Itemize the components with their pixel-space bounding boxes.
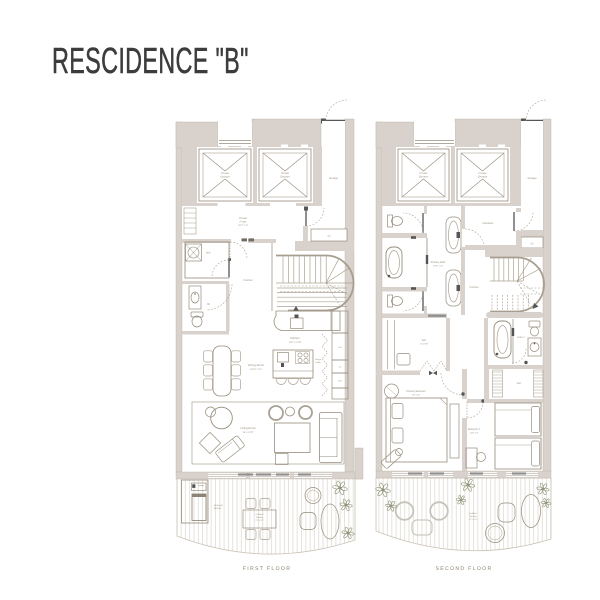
svg-text:11′6″ x 9′: 11′6″ x 9′	[470, 432, 479, 435]
svg-text:Outdoor: Outdoor	[256, 513, 264, 516]
svg-text:WIC: WIC	[517, 382, 522, 385]
svg-text:Wardrobe: Wardrobe	[483, 222, 494, 225]
svg-text:Elevator: Elevator	[220, 176, 230, 179]
svg-text:Larder: Larder	[315, 361, 321, 364]
svg-text:17′ x 14′: 17′ x 14′	[469, 518, 478, 521]
svg-text:Storage: Storage	[329, 177, 339, 180]
svg-text:AC: AC	[327, 235, 331, 238]
svg-text:Kitchen: Kitchen	[290, 336, 300, 340]
svg-text:13′10″ x 11′: 13′10″ x 11′	[250, 368, 263, 371]
svg-text:Primary Bath: Primary Bath	[431, 261, 446, 264]
svg-text:10′7″ x 9′: 10′7″ x 9′	[238, 224, 248, 227]
svg-text:19′ x 16′: 19′ x 16′	[412, 394, 421, 397]
svg-text:Living Room: Living Room	[240, 426, 256, 430]
svg-text:DW: DW	[338, 346, 341, 349]
svg-text:Primary Bedroom: Primary Bedroom	[406, 390, 425, 393]
svg-text:16′6″ x 10′: 16′6″ x 10′	[433, 265, 444, 268]
svg-text:Outdoor: Outdoor	[469, 512, 477, 515]
svg-text:Storage: Storage	[527, 177, 537, 180]
svg-text:PR: PR	[207, 303, 211, 306]
svg-text:Dining Room: Dining Room	[248, 363, 265, 367]
svg-text:W/D: W/D	[206, 252, 211, 255]
svg-text:11′ x 9′6″: 11′ x 9′6″	[420, 343, 429, 346]
svg-text:Range: Range	[315, 358, 322, 361]
svg-text:OV: OV	[339, 366, 342, 369]
svg-text:Bath 2: Bath 2	[518, 336, 526, 339]
svg-text:27′ x 22′: 27′ x 22′	[256, 519, 265, 522]
svg-text:Terrace: Terrace	[469, 515, 477, 518]
svg-text:14′5″ x 12′8″: 14′5″ x 12′8″	[288, 341, 301, 344]
svg-text:Corridor: Corridor	[469, 286, 479, 289]
svg-text:Corridor: Corridor	[243, 279, 253, 282]
svg-text:Bedroom 2: Bedroom 2	[468, 428, 481, 431]
svg-text:Terrace: Terrace	[256, 516, 264, 519]
svg-text:Summer: Summer	[214, 504, 223, 507]
svg-text:WIC: WIC	[422, 339, 427, 342]
svg-text:FIRST FLOOR: FIRST FLOOR	[243, 566, 292, 572]
svg-text:REF: REF	[338, 380, 343, 383]
svg-text:Elevator: Elevator	[280, 176, 290, 179]
svg-text:Elevator: Elevator	[419, 176, 429, 179]
svg-text:16′ x 21′9″: 16′ x 21′9″	[243, 431, 254, 434]
svg-text:kitchen: kitchen	[214, 507, 222, 510]
svg-text:SECOND FLOOR: SECOND FLOOR	[435, 566, 492, 572]
svg-text:Elevator: Elevator	[478, 176, 488, 179]
svg-text:AC: AC	[530, 243, 534, 246]
